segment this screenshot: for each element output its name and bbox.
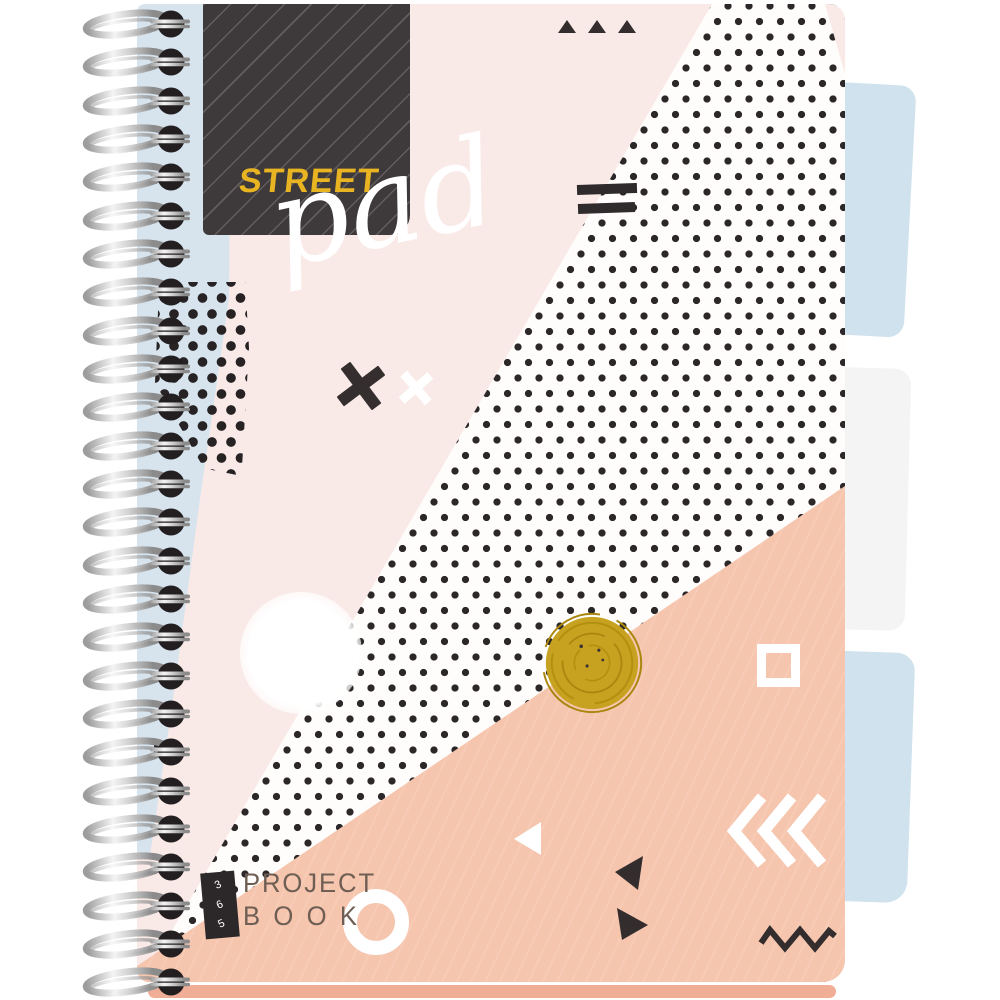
title-project: PROJECT (243, 868, 376, 899)
title-book: BOOK (243, 901, 370, 932)
black-bar-bottom (578, 202, 635, 214)
black-x-mark (332, 357, 391, 416)
brand-square: STREET (203, 4, 410, 235)
white-square-outline (757, 644, 800, 687)
spiral-binding (50, 0, 200, 1000)
badge-365: 3 6 5 (200, 871, 240, 940)
triangle-row-icon (558, 20, 636, 33)
white-x-mark (396, 368, 437, 409)
black-bar-top (577, 183, 637, 195)
gold-scribble-circle (538, 609, 646, 717)
notebook-front-cover: STREET pad (137, 4, 845, 982)
street-pad-notebook-photo: STREET pad (0, 0, 1000, 1000)
badge-digit: 5 (217, 918, 227, 931)
notebook-pages-edge (148, 985, 836, 998)
brand-wordmark: STREET (237, 162, 381, 201)
badge-digit: 6 (215, 899, 225, 912)
badge-digit: 3 (213, 880, 223, 893)
white-scribble-circle (240, 592, 362, 714)
